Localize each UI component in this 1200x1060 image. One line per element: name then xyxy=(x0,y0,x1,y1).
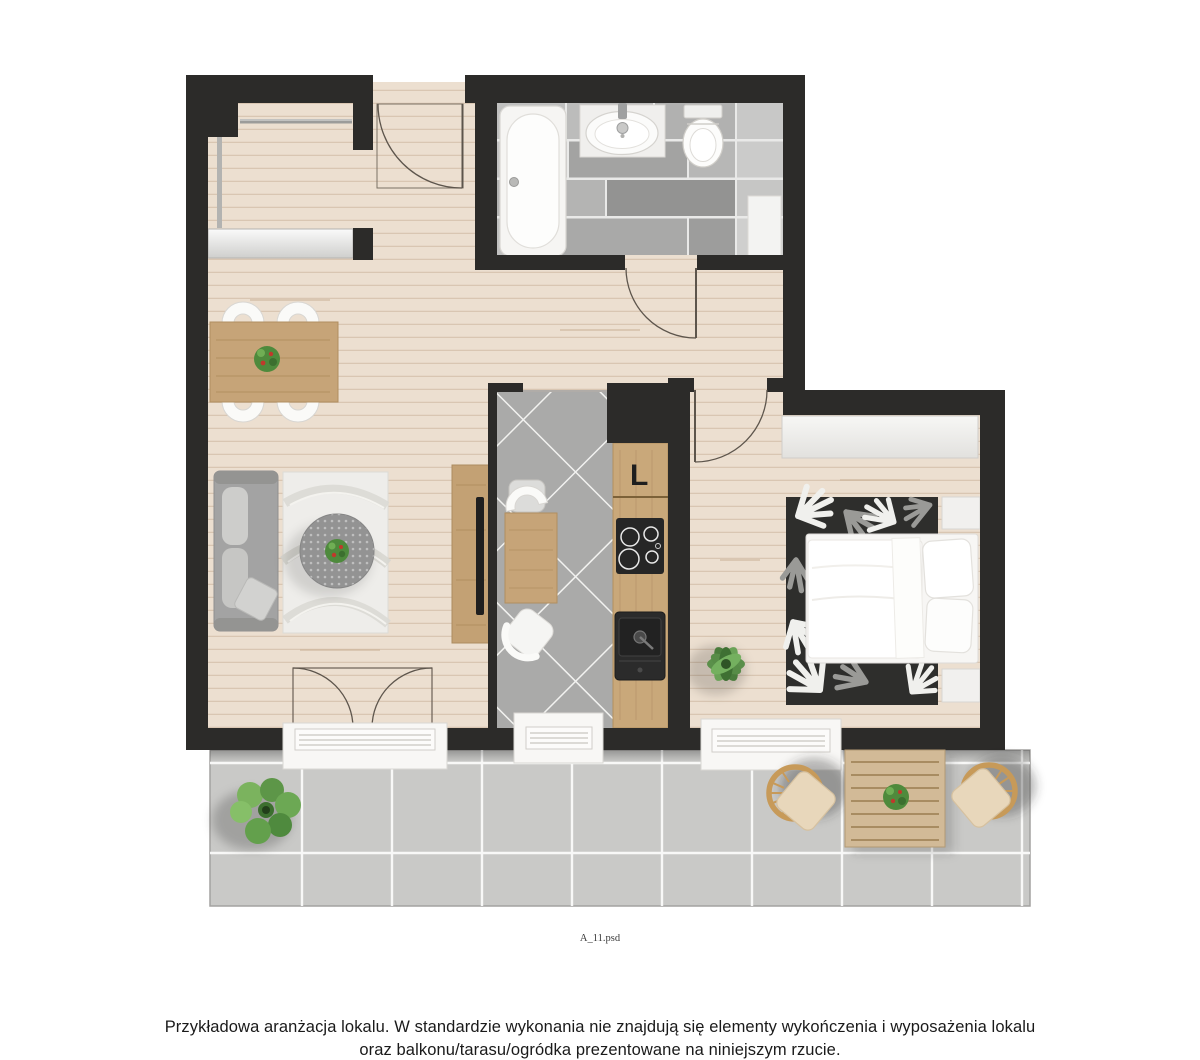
nightstand xyxy=(942,497,980,529)
balcony-door-threshold xyxy=(283,723,447,769)
pillow xyxy=(922,538,974,598)
disclaimer: Przykładowa aranżacja lokalu. W standard… xyxy=(0,1016,1200,1060)
disclaimer-line-2: oraz balkonu/tarasu/ogródka prezentowane… xyxy=(0,1039,1200,1060)
pillow xyxy=(925,598,974,653)
cooktop xyxy=(616,518,664,574)
nightstand xyxy=(942,669,980,702)
bed xyxy=(806,534,978,663)
bedroom-wardrobe xyxy=(782,416,978,458)
sofa-cushion xyxy=(222,487,248,545)
kitchen-sink xyxy=(615,612,665,680)
floor-plan-svg: L xyxy=(0,0,1200,1010)
kitchen-table xyxy=(505,513,557,603)
bathtub-faucet xyxy=(510,178,519,187)
fridge-label: L xyxy=(630,459,648,492)
file-label: A_11.psd xyxy=(580,933,621,944)
disclaimer-line-1: Przykładowa aranżacja lokalu. W standard… xyxy=(0,1016,1200,1039)
kitchen-counter: L xyxy=(613,443,668,728)
sofa xyxy=(214,471,279,631)
coffee-table xyxy=(300,514,374,588)
sink-faucet xyxy=(618,103,627,119)
tv-stand xyxy=(452,465,490,643)
sideboard xyxy=(208,229,353,258)
tv xyxy=(476,497,484,615)
bathroom-cabinet xyxy=(748,196,781,257)
kitchen-window xyxy=(514,713,603,763)
floorplan-canvas: L xyxy=(0,0,1200,1060)
balcony-table xyxy=(845,750,953,853)
table-plant xyxy=(254,346,280,372)
toilet xyxy=(683,105,723,167)
balcony-table-plant xyxy=(883,784,909,810)
bathroom-sink xyxy=(580,103,665,157)
bathtub xyxy=(500,106,566,256)
coffee-table-plant xyxy=(325,539,349,563)
